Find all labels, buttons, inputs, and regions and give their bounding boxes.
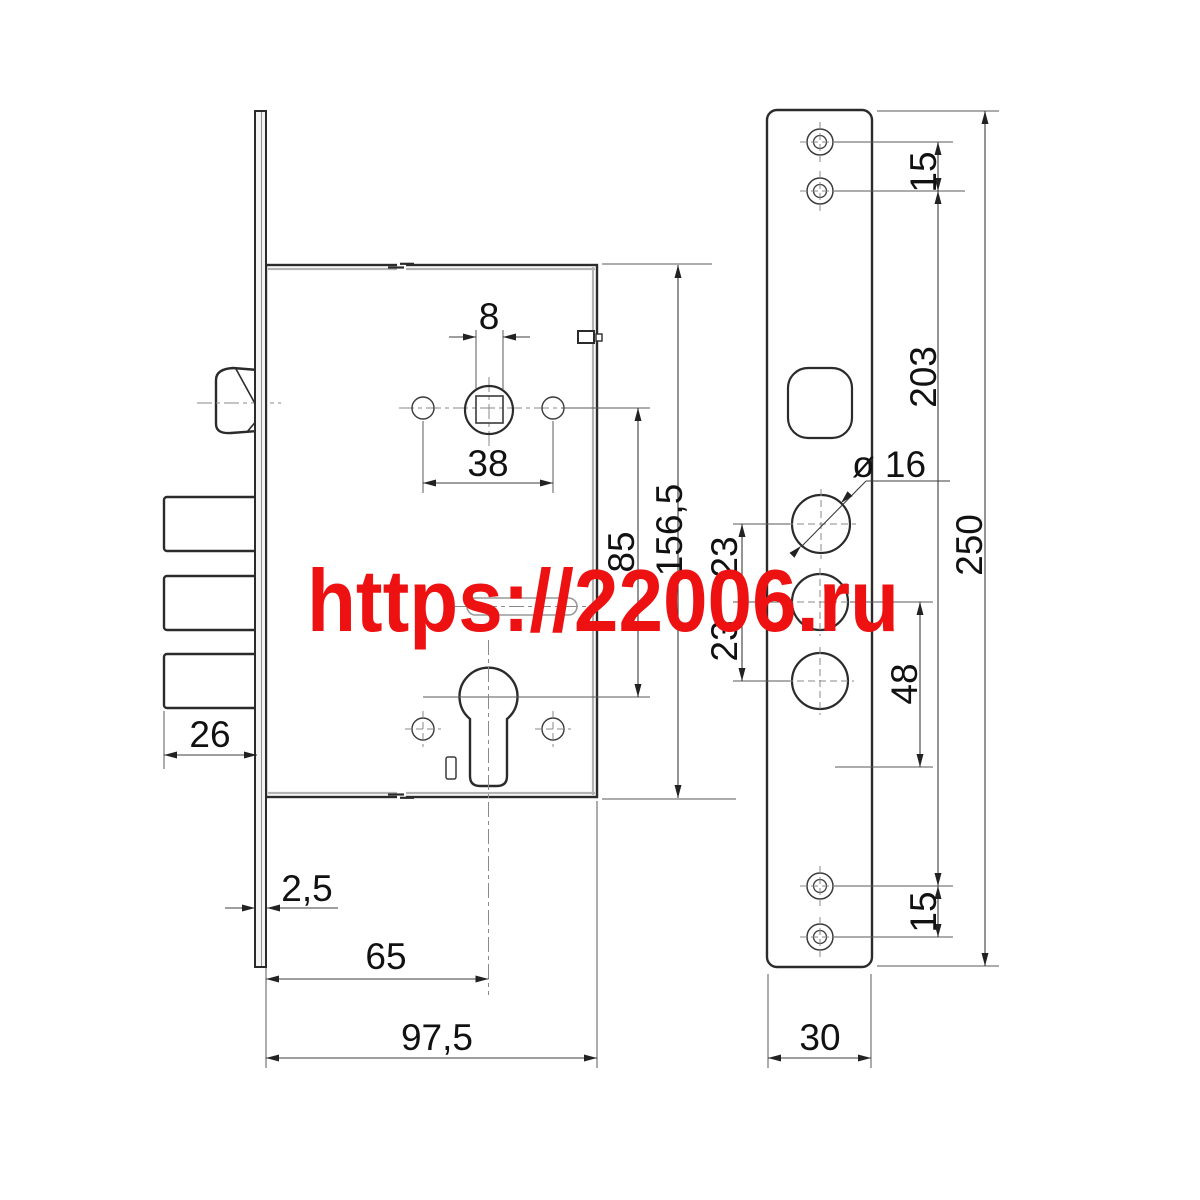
dim-label-48: 48	[884, 663, 925, 704]
dim-label-250: 250	[949, 514, 990, 576]
dim-body-depth: 97,5	[266, 801, 597, 1068]
dim-label-97-5: 97,5	[401, 1017, 473, 1058]
watermark-url: https://22006.ru	[307, 551, 899, 650]
dim-label-15-top: 15	[903, 151, 944, 192]
drawing-canvas: 8 38 85 156,5	[0, 0, 1200, 1200]
dim-label-diameter-16: ø 16	[852, 444, 926, 485]
dim-label-203: 203	[903, 346, 944, 408]
deadbolt-3	[164, 654, 258, 708]
dim-plate-width: 30	[768, 974, 871, 1068]
dim-label-8: 8	[479, 296, 500, 337]
lock-body-case	[266, 265, 597, 797]
dim-bolt-throw: 26	[164, 711, 257, 769]
dim-label-26: 26	[189, 714, 230, 755]
latch-bolt	[216, 368, 258, 433]
case-clip-tab	[578, 331, 594, 343]
dim-label-30: 30	[799, 1017, 840, 1058]
dim-label-2-5: 2,5	[281, 868, 332, 909]
latch-opening	[788, 368, 852, 438]
dim-label-38: 38	[467, 443, 508, 484]
dim-faceplate-thickness: 2,5	[225, 868, 338, 912]
deadbolt-1	[164, 497, 258, 551]
dim-label-65: 65	[365, 936, 406, 977]
small-slot	[446, 757, 456, 779]
dim-label-15-bottom: 15	[903, 891, 944, 932]
lock-technical-drawing: 8 38 85 156,5	[0, 0, 1200, 1200]
dim-screw-span: 203	[903, 191, 944, 886]
faceplate-edge	[255, 111, 266, 967]
deadbolt-2	[164, 576, 258, 630]
